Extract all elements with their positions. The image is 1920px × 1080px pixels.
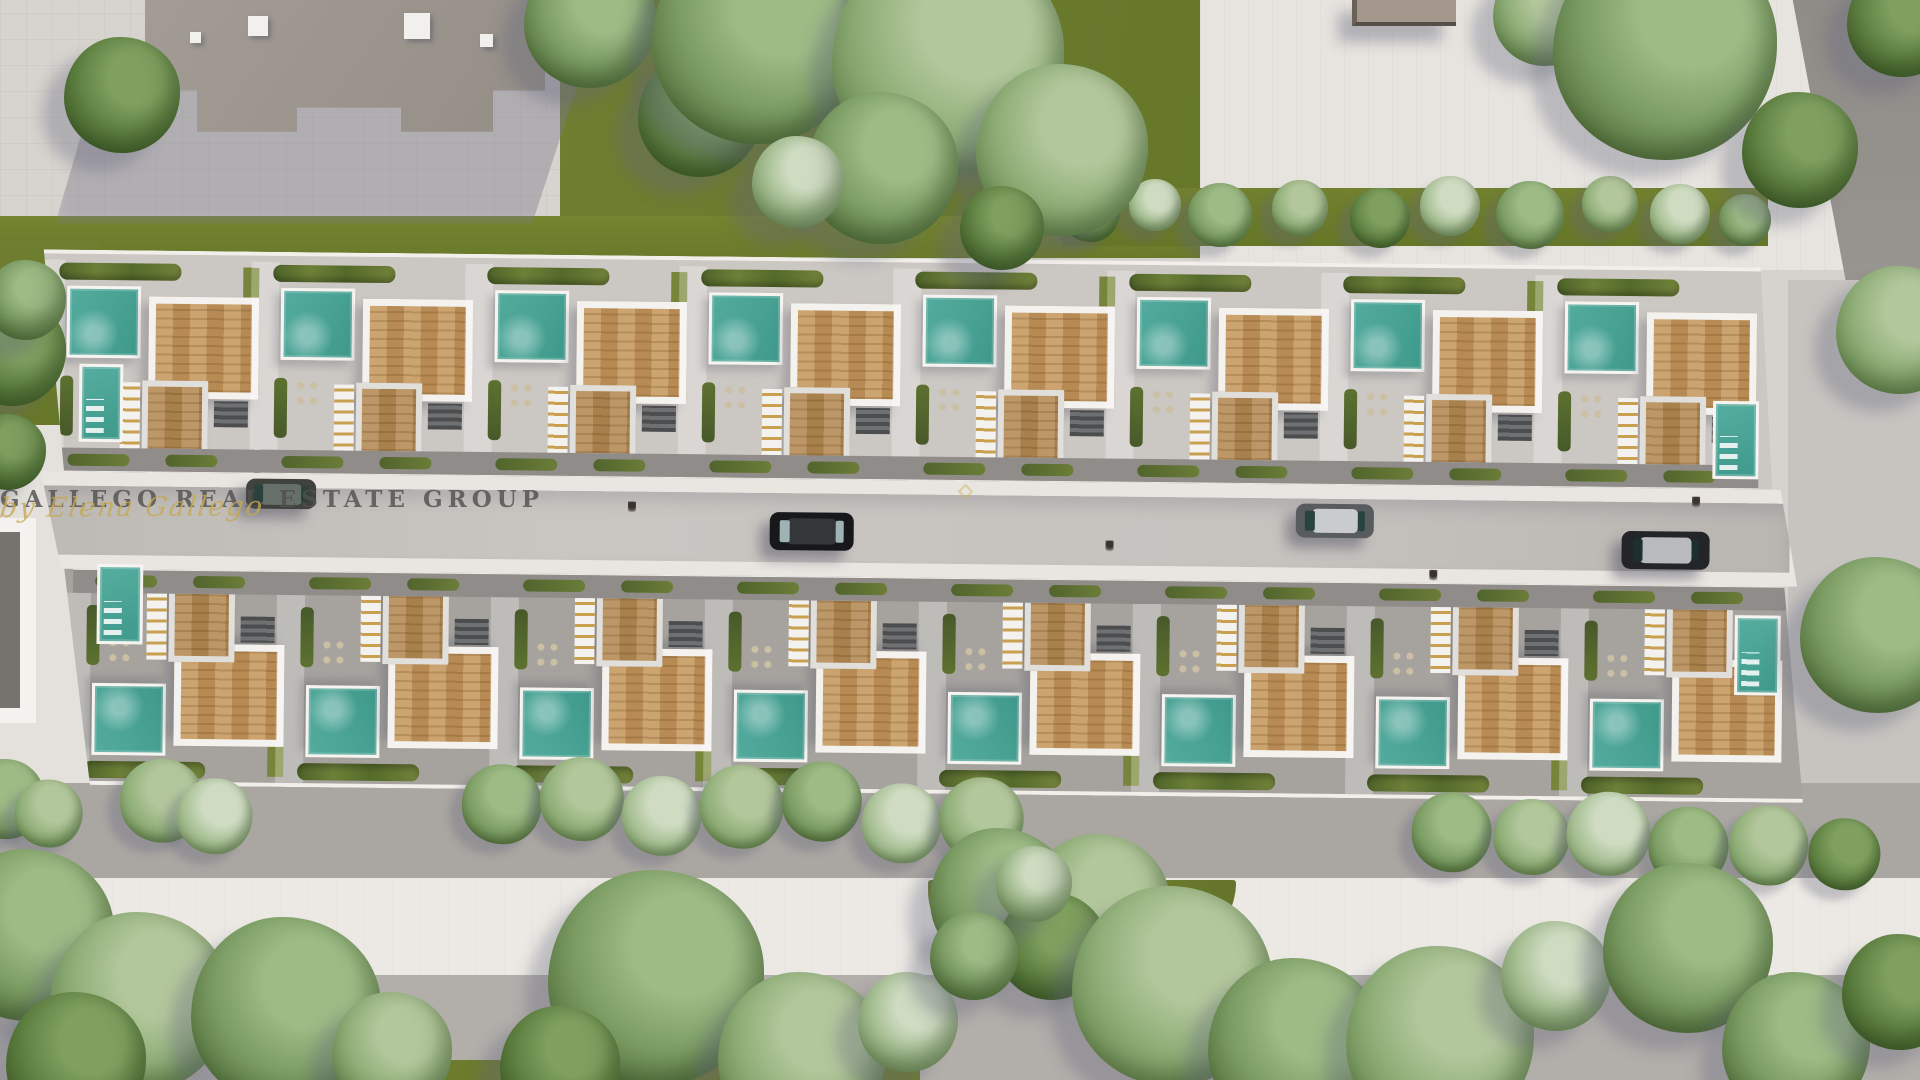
patio-table	[320, 637, 346, 667]
hedge	[300, 607, 314, 667]
patio-table	[722, 383, 748, 413]
tree	[64, 37, 180, 153]
stairs	[214, 401, 248, 427]
pool	[947, 692, 1022, 765]
villa-unit	[473, 264, 690, 480]
tree	[752, 136, 844, 228]
pool	[733, 690, 808, 763]
bush	[1350, 188, 1410, 248]
patio-table	[748, 642, 774, 672]
patio-table	[1604, 651, 1630, 681]
patio-table	[1150, 387, 1176, 417]
stairs	[1284, 412, 1318, 438]
deck-ladder	[1617, 398, 1638, 468]
villa-unit	[1329, 273, 1546, 489]
hedge	[728, 612, 742, 672]
deck-ladder	[1403, 396, 1424, 466]
backyard	[901, 456, 1116, 484]
bush	[1188, 183, 1252, 247]
patio-table	[1176, 646, 1202, 676]
hedge	[1370, 618, 1384, 678]
patio-table	[936, 385, 962, 415]
backyard	[259, 450, 474, 478]
pool	[1712, 401, 1759, 479]
pool	[708, 292, 783, 365]
tree	[930, 912, 1018, 1000]
street-bush	[1728, 805, 1809, 886]
street-bush	[699, 764, 784, 849]
roof-deck-small	[1452, 601, 1519, 676]
bush	[1420, 176, 1480, 236]
bush	[1496, 181, 1564, 249]
patio-table	[962, 644, 988, 674]
street-bush	[1566, 791, 1651, 876]
car	[1296, 504, 1374, 539]
roof-deck-small	[382, 590, 449, 665]
villa-unit	[713, 573, 930, 789]
roof-deck-small	[1238, 599, 1305, 674]
stairs	[455, 619, 489, 645]
hedge	[514, 609, 528, 669]
deck-ladder	[1216, 601, 1237, 671]
hedge	[59, 263, 181, 281]
street-bush	[461, 764, 542, 845]
backyard	[45, 447, 260, 475]
tree	[960, 186, 1044, 270]
car	[1621, 531, 1709, 570]
hedge	[1153, 772, 1275, 790]
roof-deck-small	[141, 380, 208, 455]
hedge	[916, 385, 930, 445]
roof-deck-small	[569, 385, 636, 460]
pool	[922, 295, 997, 368]
pool	[305, 685, 380, 758]
hedge	[60, 376, 74, 436]
tree	[1501, 921, 1611, 1031]
hedge	[297, 763, 419, 781]
deck-ladder	[146, 589, 167, 659]
pool	[1136, 297, 1211, 370]
roof-deck-small	[596, 592, 663, 667]
villa-unit	[927, 576, 1144, 792]
stairs	[1524, 630, 1558, 656]
hedge	[1129, 274, 1251, 292]
roof-deck-small	[355, 383, 422, 458]
backyard	[1143, 578, 1358, 606]
pool	[519, 687, 594, 760]
deck-ladder	[975, 391, 996, 461]
stairs	[668, 621, 702, 647]
pool	[1161, 694, 1236, 767]
deck-ladder	[333, 384, 354, 454]
villa-unit	[1355, 580, 1572, 796]
hedge	[1130, 387, 1144, 447]
stairs	[1498, 415, 1532, 441]
villa-unit	[45, 259, 262, 475]
pool	[280, 288, 355, 361]
deck-ladder	[1644, 605, 1665, 675]
hedge	[915, 272, 1037, 290]
roof-deck-small	[783, 387, 850, 462]
roof-deck-small	[1639, 396, 1706, 471]
street-bush	[176, 778, 253, 855]
hedge	[273, 265, 395, 283]
roof-deck-small	[810, 594, 877, 669]
backyard	[287, 569, 502, 597]
pedestrian	[628, 502, 636, 515]
deck-ladder	[360, 592, 381, 662]
stairs	[856, 408, 890, 434]
hedge	[487, 267, 609, 285]
backyard	[715, 573, 930, 601]
hedge	[1343, 276, 1465, 294]
deck-ladder	[1189, 393, 1210, 463]
roof-deck-small	[1666, 603, 1733, 678]
roof-deck-small	[1425, 394, 1492, 469]
tree	[1742, 92, 1858, 208]
villa-unit	[499, 571, 716, 787]
street-bush	[1411, 792, 1492, 873]
pool	[1350, 299, 1425, 372]
patio-table	[1390, 649, 1416, 679]
street-bush	[1808, 818, 1881, 891]
deck-ladder	[574, 594, 595, 664]
hedge	[1344, 389, 1358, 449]
street-bush	[14, 779, 83, 848]
pool	[1375, 696, 1450, 769]
street-bush	[621, 775, 702, 856]
stairs	[428, 403, 462, 429]
hedge	[1156, 616, 1170, 676]
hedge	[701, 269, 823, 287]
hedge	[1367, 774, 1489, 792]
bush	[1719, 194, 1771, 246]
deck-ladder	[547, 387, 568, 457]
roof-deck-small	[168, 588, 235, 663]
patio-table	[294, 378, 320, 408]
stairs	[1310, 628, 1344, 654]
hedge	[1557, 278, 1679, 296]
pool	[494, 290, 569, 363]
hedge	[942, 614, 956, 674]
pedestrian	[1105, 541, 1113, 554]
stairs	[1070, 410, 1104, 436]
pool	[79, 364, 124, 442]
villa-row-lower	[55, 569, 1805, 803]
street-bush	[781, 761, 862, 842]
car	[770, 512, 854, 551]
roof-deck-small	[1024, 597, 1091, 672]
stairs	[241, 616, 275, 642]
roof-deck-small	[1211, 392, 1278, 467]
stairs	[882, 623, 916, 649]
pool	[96, 564, 143, 644]
deck-ladder	[761, 389, 782, 459]
roof-deck-small	[997, 389, 1064, 464]
villa-unit	[687, 266, 904, 482]
pool	[66, 286, 141, 359]
pedestrian	[1692, 497, 1700, 510]
patio-table	[534, 640, 560, 670]
stairs	[1096, 625, 1130, 651]
backyard	[1115, 459, 1330, 487]
pool	[1564, 301, 1639, 374]
villa-unit	[901, 268, 1118, 484]
backyard	[1571, 582, 1786, 610]
villa-row-upper	[36, 249, 1774, 489]
backyard	[929, 576, 1144, 604]
patio-table	[1364, 389, 1390, 419]
patio-table	[508, 380, 534, 410]
tree	[996, 846, 1072, 922]
bush	[1582, 176, 1638, 232]
hedge	[702, 382, 716, 442]
backyard	[1357, 580, 1572, 608]
villa-unit	[1115, 271, 1332, 487]
pool	[1734, 615, 1781, 695]
deck-ladder	[1430, 603, 1451, 673]
backyard	[501, 571, 716, 599]
pool	[1589, 699, 1664, 772]
aerial-render: GALLEGO REAL ESTATE GROUP by Elena Galle…	[0, 0, 1920, 1080]
backyard	[1329, 461, 1544, 489]
hedge	[1584, 621, 1598, 681]
bush	[1650, 184, 1710, 244]
deck-ladder	[788, 596, 809, 666]
villa-unit	[285, 569, 502, 785]
hedge	[1558, 391, 1572, 451]
patio-table	[1578, 391, 1604, 421]
villa-unit	[259, 262, 476, 478]
bush	[1272, 180, 1328, 236]
watermark-byline: by Elena Gallego	[0, 491, 266, 524]
backyard	[473, 452, 688, 480]
street-bush	[1493, 799, 1570, 876]
pedestrian	[1429, 570, 1437, 583]
backyard	[687, 454, 902, 482]
hedge	[274, 378, 288, 438]
street-bush	[861, 783, 942, 864]
deck-ladder	[1002, 598, 1023, 668]
street-bush	[539, 757, 624, 842]
stairs	[642, 406, 676, 432]
villa-unit	[1141, 578, 1358, 794]
hedge	[488, 380, 502, 440]
pool	[91, 683, 166, 756]
